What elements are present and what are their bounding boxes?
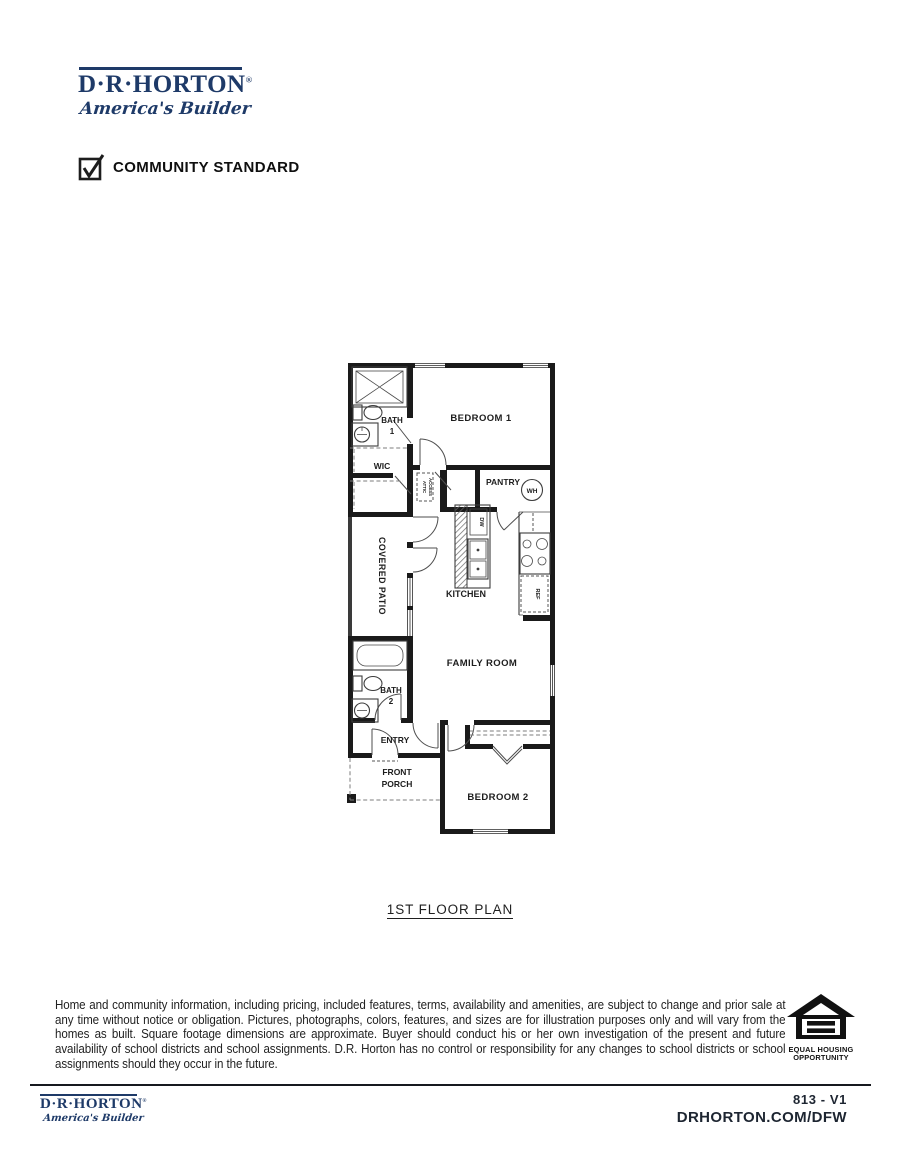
floor-plan-diagram: BEDROOM 1 BATH 1 WIC ATTIC ACCESS PANTRY… [345, 360, 559, 838]
room-label-bath1: BATH [381, 416, 403, 425]
room-label-family-room: FAMILY ROOM [447, 658, 517, 669]
label-refrigerator: REF [534, 589, 540, 601]
svg-text:ACCESS: ACCESS [428, 478, 433, 496]
footer-logo: D·R·HORTON® America's Builder [40, 1094, 147, 1124]
website-url: DRHORTON.COM/DFW [577, 1109, 847, 1126]
logo-overline [79, 67, 242, 70]
disclaimer-text: Home and community information, includin… [55, 998, 785, 1072]
room-label-entry: ENTRY [381, 735, 410, 745]
room-label-front-porch: FRONT [382, 767, 412, 777]
room-label-bedroom2: BEDROOM 2 [467, 792, 528, 803]
window-family-room [551, 665, 555, 696]
labels-layer: BEDROOM 1 BATH 1 WIC ATTIC ACCESS PANTRY… [374, 413, 540, 803]
room-label-bath2: BATH [380, 686, 402, 695]
toilet-bath2 [353, 676, 382, 691]
header-logo: D·R·HORTON® America's Builder [78, 67, 253, 119]
window-top-1 [415, 364, 445, 368]
room-label-kitchen: KITCHEN [446, 589, 486, 599]
registered-mark: ® [246, 75, 253, 85]
window-bedroom2 [473, 830, 508, 834]
label-water-heater: WH [527, 488, 538, 495]
room-label-covered-patio: COVERED PATIO [377, 537, 387, 615]
dashed-layer [350, 448, 550, 800]
brand-name: D·R·HORTON [78, 71, 246, 98]
equal-housing-icon [786, 993, 856, 1041]
window-top-2 [523, 364, 548, 368]
footer-logo-wordmark: D·R·HORTON® [40, 1097, 147, 1113]
room-label-bedroom1: BEDROOM 1 [450, 413, 511, 424]
floor-plan-caption: 1ST FLOOR PLAN [0, 902, 900, 917]
checkbox-checked-icon [77, 152, 107, 182]
bathtub [353, 641, 407, 670]
plan-code: 813 - V1 [577, 1092, 847, 1107]
equal-housing-logo: EQUAL HOUSING OPPORTUNITY [786, 993, 856, 1062]
svg-text:2: 2 [389, 697, 394, 706]
svg-text:1: 1 [390, 427, 395, 436]
flyer-page: D·R·HORTON® America's Builder COMMUNITY … [0, 0, 900, 1164]
label-dishwasher: DW [478, 517, 484, 527]
window-patio-2 [408, 610, 413, 636]
sink-bath1 [352, 423, 378, 446]
logo-wordmark: D·R·HORTON® [78, 72, 253, 98]
window-patio-1 [408, 578, 413, 606]
logo-tagline: America's Builder [77, 99, 254, 119]
stove [520, 533, 550, 574]
community-standard-badge: COMMUNITY STANDARD [77, 152, 300, 182]
footer-divider [30, 1084, 871, 1086]
svg-text:PORCH: PORCH [382, 779, 413, 789]
footer-logo-tagline: America's Builder [39, 1113, 147, 1124]
equal-housing-text-2: OPPORTUNITY [786, 1054, 856, 1062]
room-label-pantry: PANTRY [486, 477, 520, 487]
community-standard-label: COMMUNITY STANDARD [113, 159, 300, 176]
kitchen-sink [468, 539, 488, 579]
room-label-wic: WIC [374, 461, 391, 471]
room-label-attic: ATTIC [422, 481, 427, 493]
shower [352, 367, 407, 407]
footer-info: 813 - V1 DRHORTON.COM/DFW [577, 1092, 847, 1126]
